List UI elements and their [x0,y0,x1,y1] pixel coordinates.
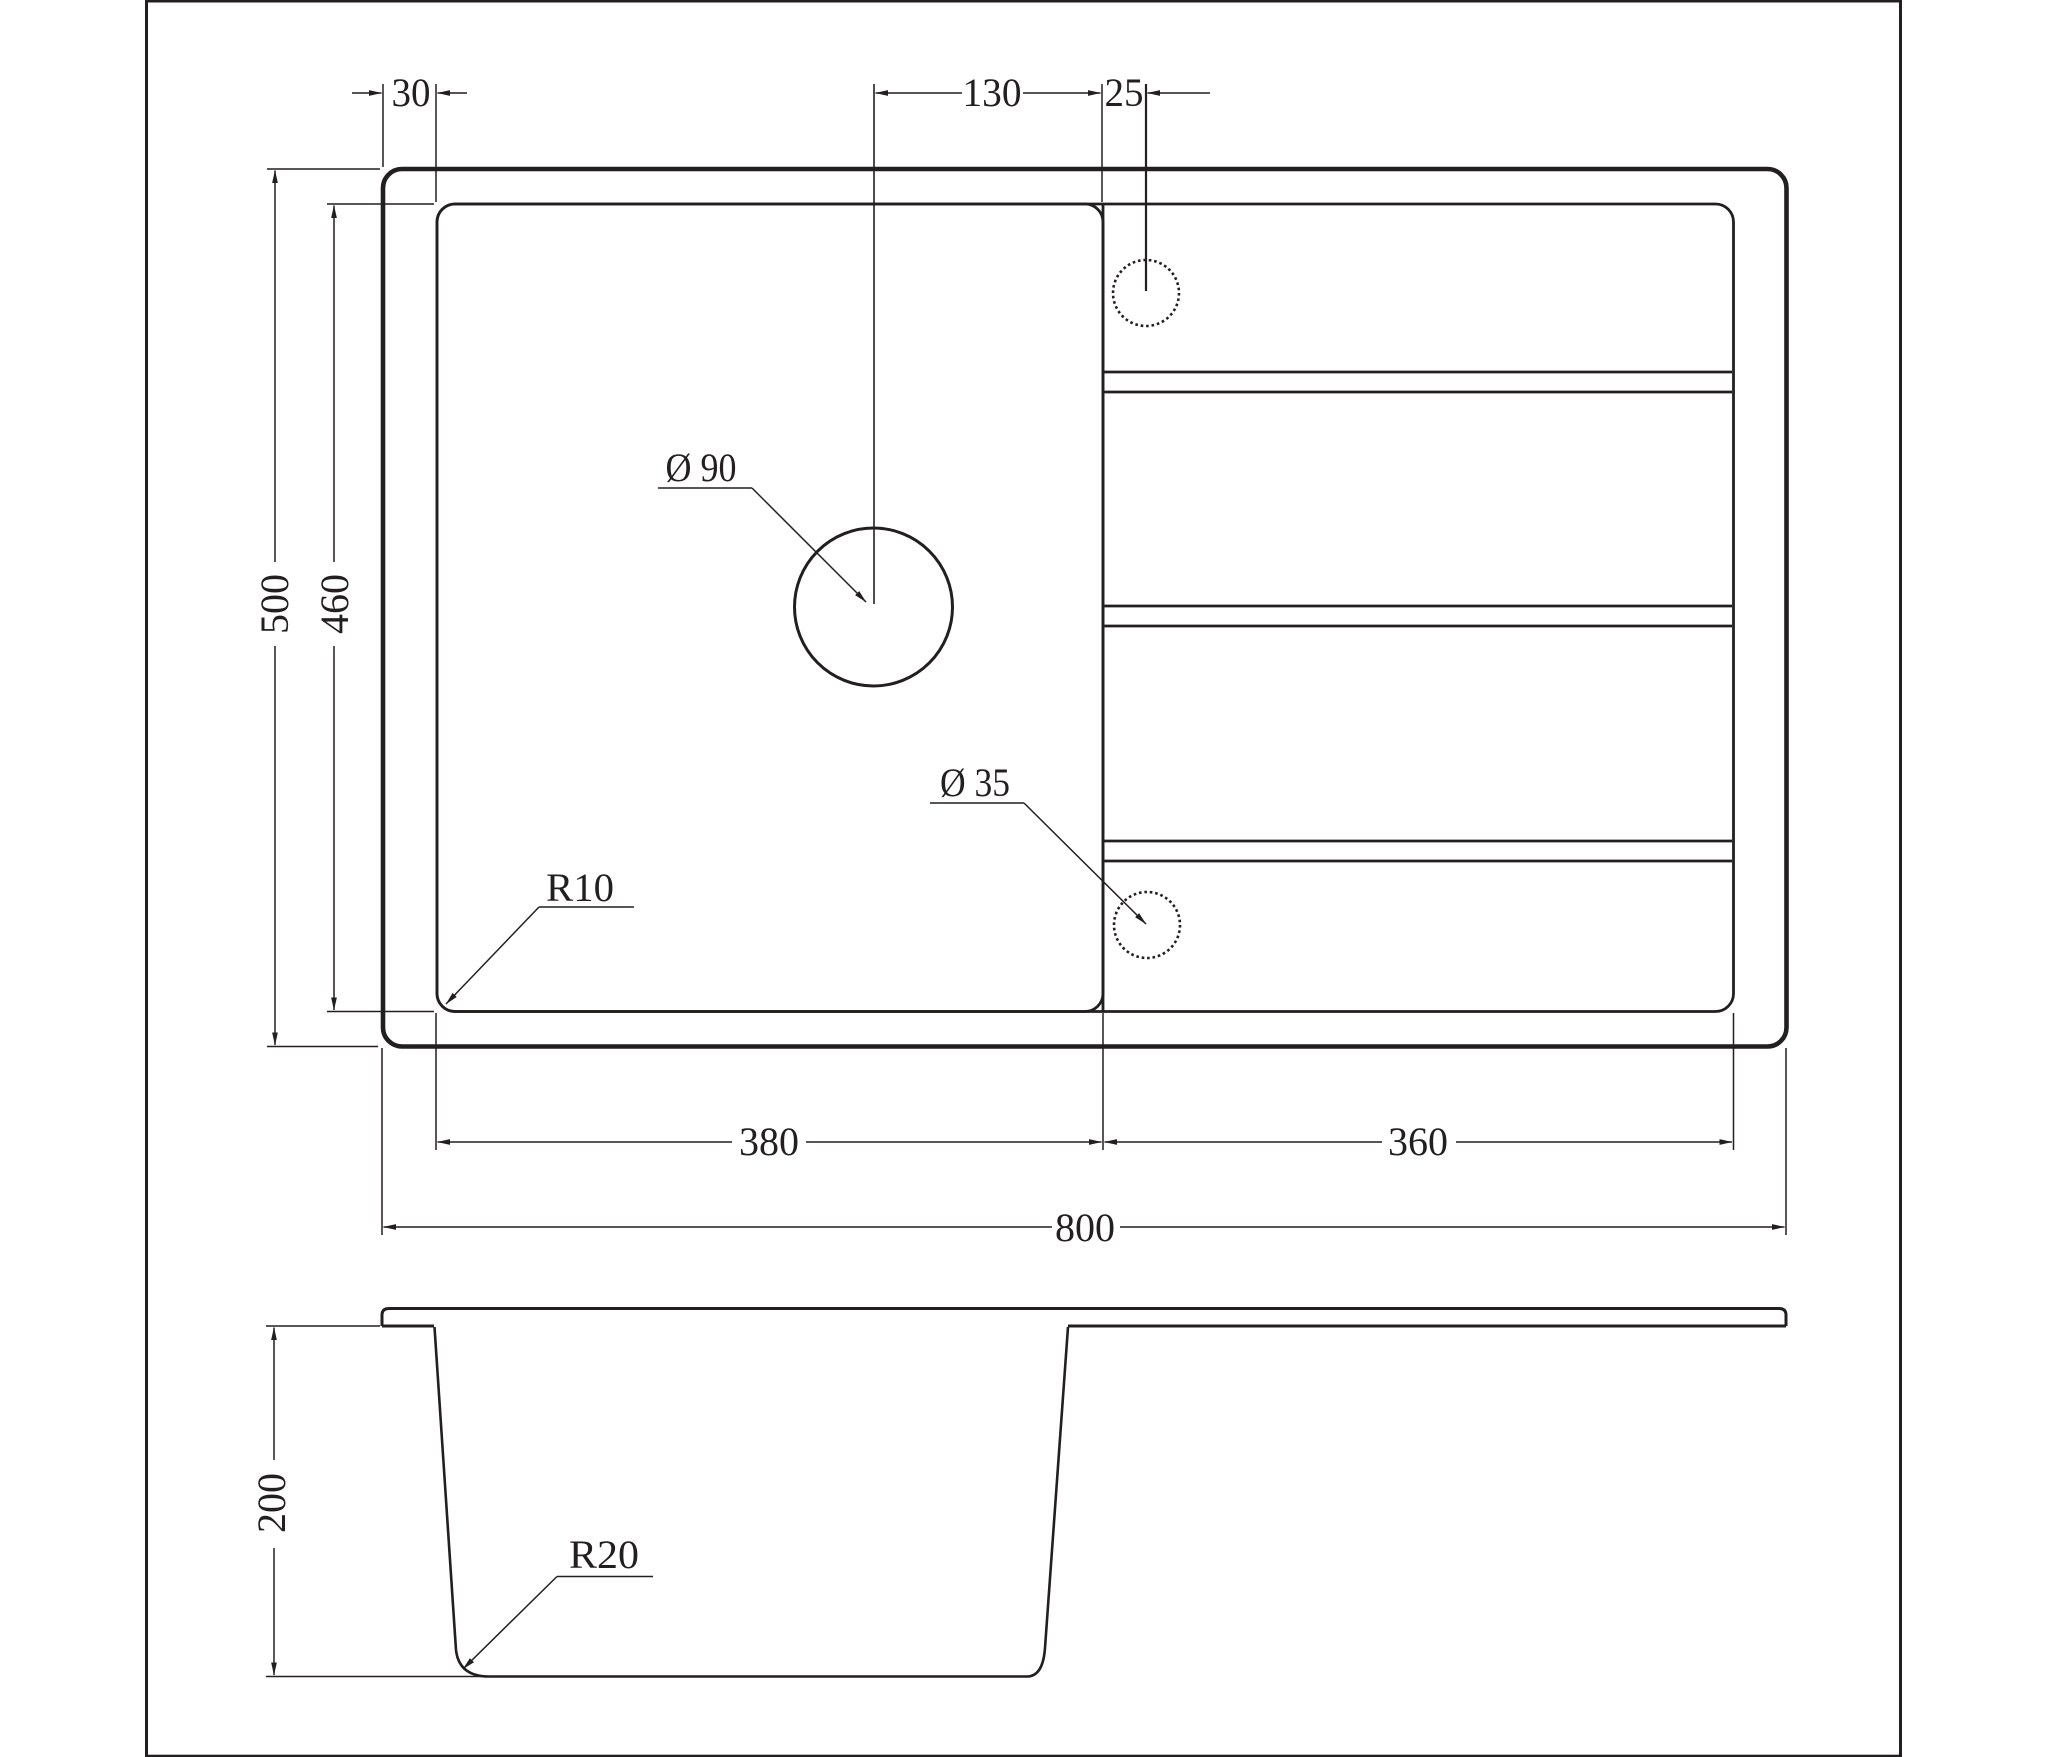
svg-text:130: 130 [963,70,1022,115]
svg-text:25: 25 [1105,70,1144,115]
svg-text:380: 380 [739,1119,799,1164]
svg-text:500: 500 [252,574,297,634]
svg-text:360: 360 [1388,1119,1448,1164]
svg-text:R20: R20 [569,1532,639,1577]
svg-text:R10: R10 [546,865,614,910]
svg-text:460: 460 [312,574,357,634]
svg-text:Ø 35: Ø 35 [940,760,1010,805]
svg-text:800: 800 [1055,1205,1115,1250]
svg-text:200: 200 [249,1473,294,1533]
svg-text:Ø 90: Ø 90 [666,445,737,490]
svg-text:30: 30 [392,70,431,115]
